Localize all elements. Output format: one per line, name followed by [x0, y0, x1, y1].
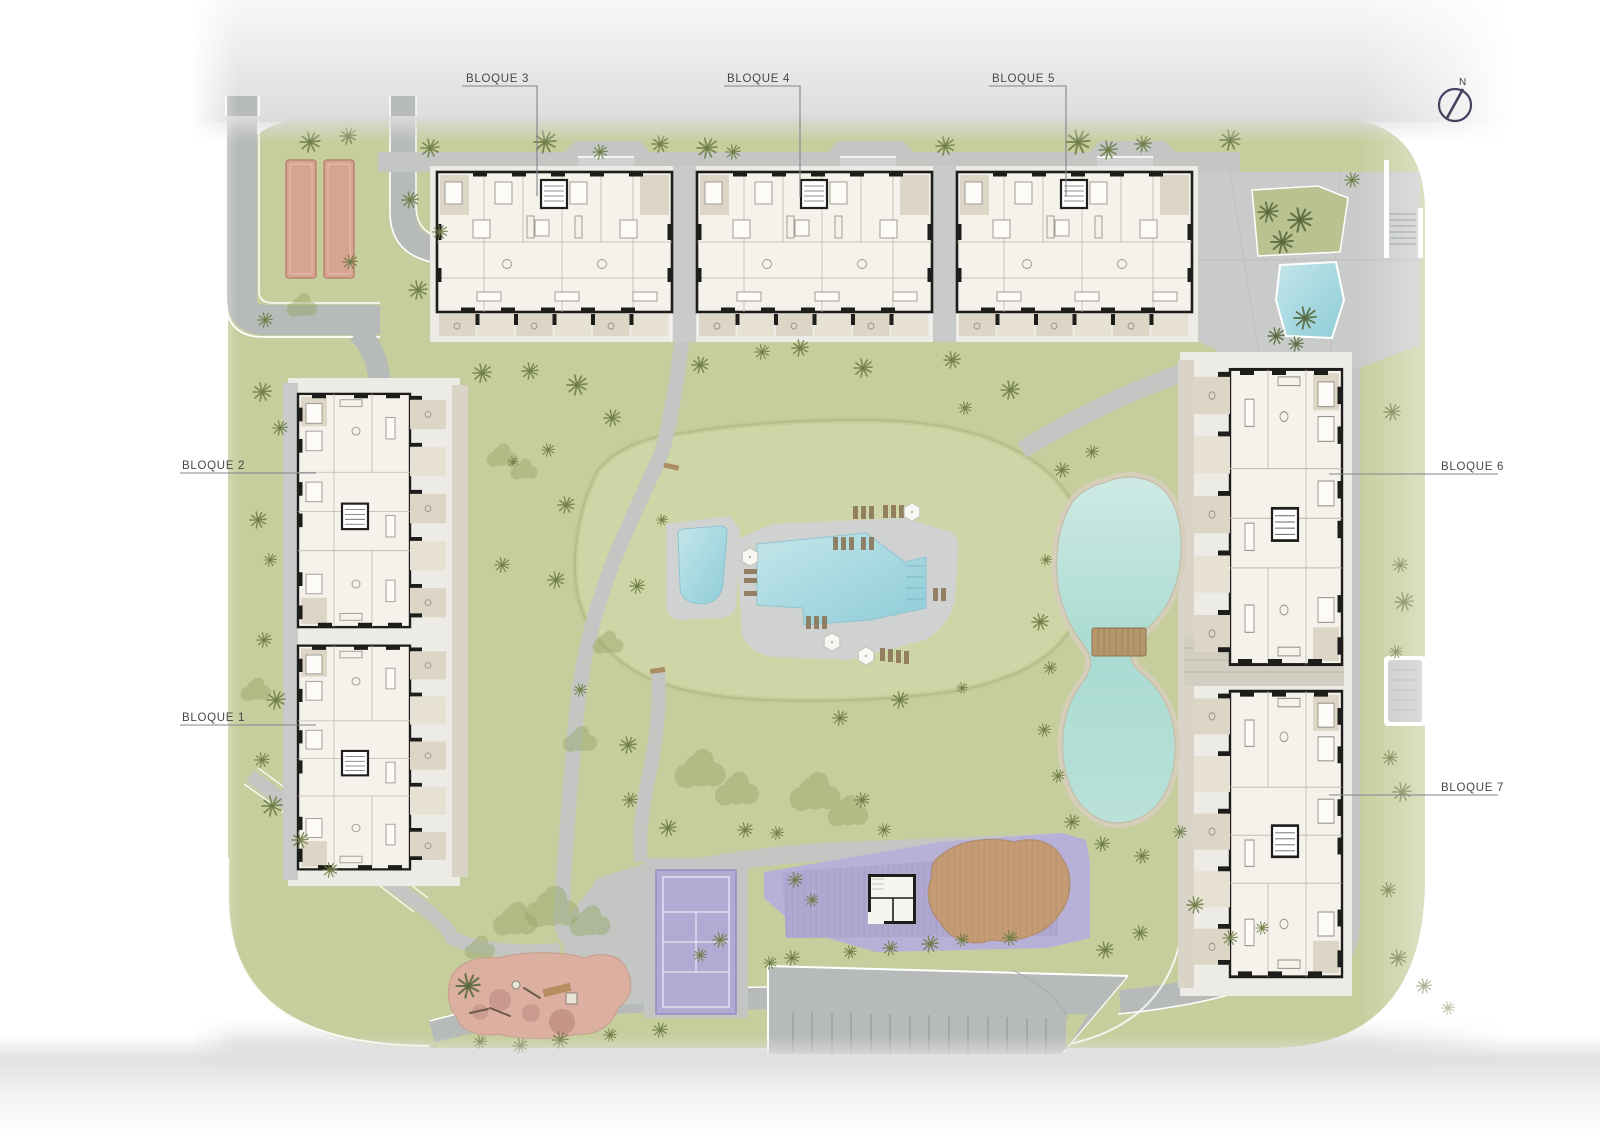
- entry-bump-4: [828, 141, 913, 152]
- right-fade: [1360, 0, 1600, 1138]
- left-gravel-strip: [452, 385, 468, 877]
- bloque-1-label: BLOQUE 1: [182, 712, 245, 724]
- between-blocks-strip-1: [672, 166, 697, 342]
- lounger-group-3: [744, 569, 757, 596]
- compass-north-label: N: [1459, 77, 1466, 88]
- bloque-4-label: BLOQUE 4: [727, 73, 790, 85]
- site: [226, 96, 1454, 1054]
- bloque-6-label: BLOQUE 6: [1441, 461, 1504, 473]
- bloque-7-label: BLOQUE 7: [1441, 782, 1504, 794]
- bloque-3-label: BLOQUE 3: [466, 73, 529, 85]
- playground: [449, 953, 631, 1039]
- bottom-fade: [0, 1036, 1600, 1138]
- entry-bump-3: [565, 141, 650, 152]
- block-1-building: [298, 646, 446, 870]
- block-5-building: [957, 172, 1192, 336]
- playground-surface: [449, 953, 631, 1039]
- block-4-building: [697, 172, 932, 336]
- left-fade: [0, 0, 238, 1138]
- block-2-building: [298, 394, 446, 627]
- kids-pool: [678, 526, 727, 604]
- left-west-walk: [283, 383, 298, 880]
- site-plan-page: BLOQUE 3 BLOQUE 4 BLOQUE 5 BLOQUE 2 BLOQ…: [0, 0, 1600, 1138]
- umbrella-icon: [824, 633, 840, 651]
- lake-bridge: [1092, 628, 1146, 656]
- site-plan-canvas: BLOQUE 3 BLOQUE 4 BLOQUE 5 BLOQUE 2 BLOQ…: [0, 0, 1600, 1138]
- block-3-building: [437, 172, 672, 336]
- bloque-5-label: BLOQUE 5: [992, 73, 1055, 85]
- block-7-building: [1194, 691, 1342, 977]
- umbrella-icon: [904, 503, 920, 521]
- block-6-building: [1194, 369, 1342, 664]
- community-building: [868, 874, 916, 924]
- lounger-group-4: [806, 616, 827, 629]
- bloque-2-label: BLOQUE 2: [182, 460, 245, 472]
- umbrella-icon: [742, 548, 758, 566]
- between-blocks-strip-2: [932, 166, 957, 342]
- umbrella-icon: [858, 647, 874, 665]
